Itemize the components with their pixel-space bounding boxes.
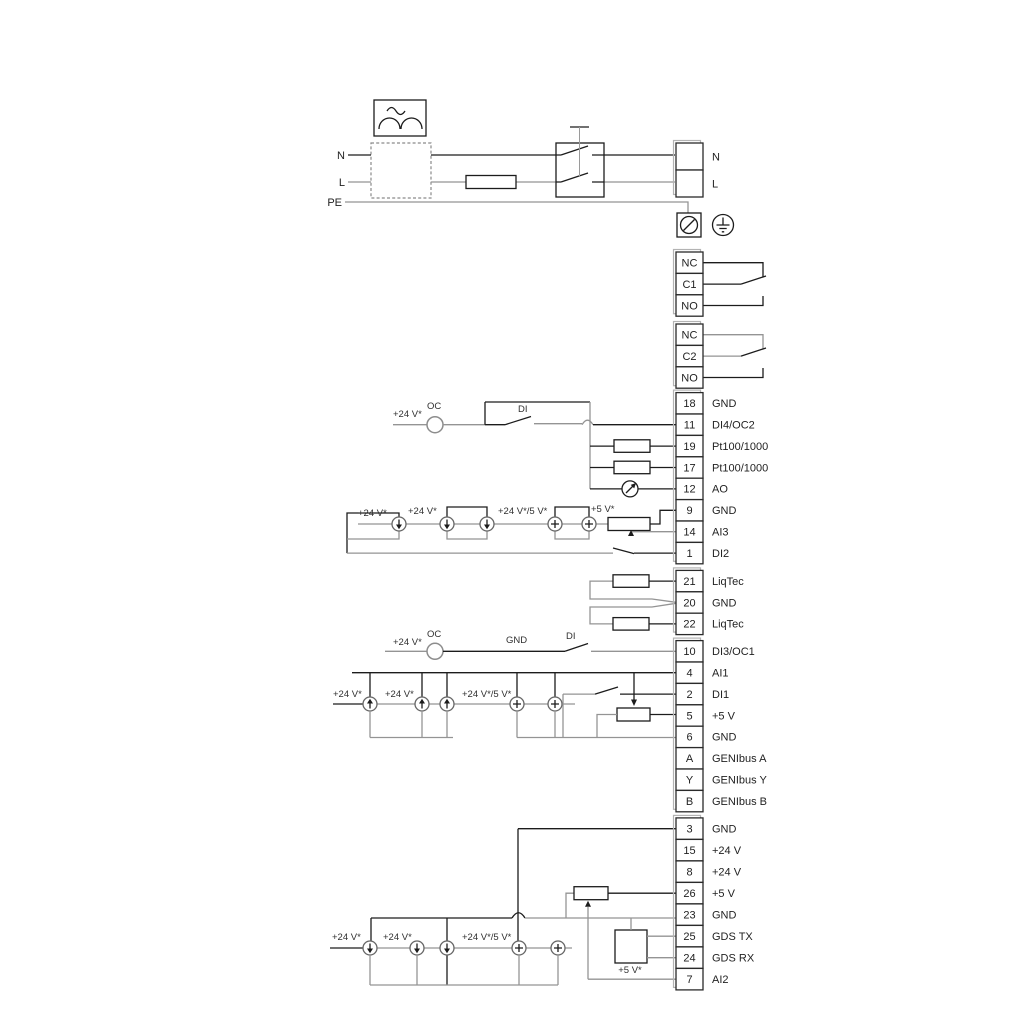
terminal-label: GENIbus A: [712, 753, 767, 765]
terminal-label: GND: [712, 505, 737, 517]
liqtec-resistor: [613, 575, 649, 588]
pt100-ao-circuit: [590, 402, 676, 497]
di1-switch-blade: [595, 687, 618, 694]
terminal-label: Pt100/1000: [712, 462, 768, 474]
terminal-number: 17: [683, 462, 695, 474]
acdc-converter-box: [374, 100, 426, 136]
terminal-label: +5 V: [712, 888, 736, 900]
annotation: +24 V*: [385, 689, 414, 700]
terminal-number: 25: [683, 931, 695, 943]
terminal-label: GENIbus B: [712, 796, 767, 808]
ai3-di2-source-circuit: +24 V* +24 V* +24 V*/5 V* +5 V*: [347, 504, 676, 554]
terminal-label: AI3: [712, 527, 729, 539]
terminal-number: 18: [683, 398, 695, 410]
open-collector-icon: [427, 417, 443, 433]
annotation: +24 V*/5 V*: [462, 689, 512, 700]
relay2-wires: [703, 335, 766, 378]
annotation: +24 V*: [393, 637, 422, 648]
terminal-number: 2: [686, 689, 692, 701]
liqtec-circuit: [590, 575, 676, 630]
terminal-label: GND: [712, 398, 737, 410]
annotation: +24 V*: [393, 409, 422, 420]
terminal-label: +24 V: [712, 845, 742, 857]
open-collector-icon: [427, 643, 443, 659]
terminal-number: 5: [686, 710, 692, 722]
wire-hop: [582, 420, 593, 425]
resistor-pt100: [614, 461, 650, 474]
terminal-number: 26: [683, 888, 695, 900]
terminal-number: NO: [681, 372, 698, 384]
terminal-number: 23: [683, 909, 695, 921]
label-l-left: L: [339, 177, 345, 189]
terminal-label: DI3/OC1: [712, 646, 755, 658]
terminal-label: DI2: [712, 548, 729, 560]
relay1-wires: [703, 263, 766, 306]
terminal-label: GND: [712, 909, 737, 921]
terminal-label: LiqTec: [712, 576, 744, 588]
terminal-number: 14: [683, 527, 695, 539]
terminal-label: AI1: [712, 668, 729, 680]
annotation: OC: [427, 629, 441, 640]
annotation: +24 V*: [332, 932, 361, 943]
liqtec-resistor: [613, 618, 649, 631]
label-n-left: N: [337, 150, 345, 162]
terminal-number: 19: [683, 441, 695, 453]
terminal-number: C1: [682, 279, 696, 291]
terminal-blocks: NLNCC1NONCC2NO18GND11DI4/OC219Pt100/1000…: [674, 141, 769, 990]
terminal-label: AO: [712, 484, 728, 496]
annotation: +24 V*: [358, 508, 387, 519]
fuse-symbol: [466, 176, 516, 189]
annotation: DI: [518, 404, 528, 415]
terminal-label: L: [712, 178, 718, 190]
gds-sensor-box: [615, 930, 647, 963]
terminal-label: LiqTec: [712, 619, 744, 631]
terminal-label: GENIbus Y: [712, 775, 767, 787]
potentiometer: [617, 708, 650, 721]
terminal-number: NO: [681, 300, 698, 312]
terminal-label: Pt100/1000: [712, 441, 768, 453]
terminal-number: B: [686, 796, 693, 808]
diagram-canvas: N L PE +24 V* OC DI: [0, 0, 1024, 1024]
terminal-number: 7: [686, 974, 692, 986]
terminal-number: 11: [684, 420, 695, 432]
potentiometer: [608, 518, 650, 531]
pot-wiper-arrow: [585, 901, 591, 907]
pot-wiper-arrow: [631, 700, 637, 707]
annotation: +5 V*: [591, 504, 615, 515]
terminal-label: DI1: [712, 689, 729, 701]
terminal-number: C2: [682, 351, 696, 363]
resistor-pt100: [614, 440, 650, 453]
terminal-number: 10: [683, 646, 695, 658]
terminal-cell-mains-terminals-L: [676, 170, 703, 197]
di-switch-blade: [565, 644, 588, 652]
terminal-label: GDS RX: [712, 952, 755, 964]
terminal-number: 20: [683, 597, 695, 609]
annotation: DI: [566, 631, 576, 642]
annotation: +24 V*/5 V*: [462, 932, 512, 943]
terminal-number: 9: [686, 505, 692, 517]
terminal-number: 21: [683, 576, 695, 588]
annotation: GND: [506, 635, 527, 646]
terminal-number: 12: [683, 484, 695, 496]
di-switch-blade: [505, 417, 531, 425]
ai1-di1-source-circuit: +24 V* +24 V* +24 V*/5 V*: [333, 673, 676, 738]
pe-wire: [345, 202, 688, 213]
terminal-label: AI2: [712, 974, 729, 986]
terminal-number: 1: [686, 548, 692, 560]
terminal-number: 6: [686, 732, 692, 744]
terminal-label: N: [712, 151, 720, 163]
wiring-diagram: N L PE +24 V* OC DI: [0, 0, 1024, 1024]
label-pe: PE: [327, 197, 342, 209]
terminal-label: +24 V: [712, 866, 742, 878]
annotation: OC: [427, 401, 441, 412]
terminal-label: GDS TX: [712, 931, 753, 943]
terminal-number: NC: [682, 258, 698, 270]
terminal-label: GND: [712, 597, 737, 609]
annotation: +24 V*: [333, 689, 362, 700]
terminal-label: DI4/OC2: [712, 420, 755, 432]
terminal-number: 22: [683, 619, 695, 631]
terminal-number: 24: [683, 952, 695, 964]
terminal-number: 15: [683, 845, 695, 857]
di4-oc2-circuit: +24 V* OC DI: [393, 401, 676, 433]
di3-oc1-circuit: +24 V* OC GND DI: [385, 629, 676, 659]
terminal-number: Y: [686, 775, 694, 787]
terminal-label: +5 V: [712, 710, 736, 722]
terminal-label: GND: [712, 732, 737, 744]
terminal-cell-mains-terminals-N: [676, 143, 703, 170]
terminal-number: A: [686, 753, 694, 765]
di2-switch-blade: [613, 548, 634, 554]
potentiometer: [574, 887, 608, 900]
ai2-gds-source-circuit: +5 V* +24 V* +24 V* +24 V*/5 V*: [330, 829, 676, 985]
filter-dashed-box: [371, 143, 431, 198]
terminal-number: NC: [682, 330, 698, 342]
annotation: +24 V*: [408, 506, 437, 517]
terminal-number: 8: [686, 866, 692, 878]
mains-power-section: N L PE: [327, 100, 733, 237]
annotation: +24 V*: [383, 932, 412, 943]
terminal-number: 3: [686, 823, 692, 835]
terminal-label: GND: [712, 823, 737, 835]
annotation: +24 V*/5 V*: [498, 506, 548, 517]
terminal-number: 4: [686, 668, 692, 680]
annotation: +5 V*: [618, 965, 642, 976]
